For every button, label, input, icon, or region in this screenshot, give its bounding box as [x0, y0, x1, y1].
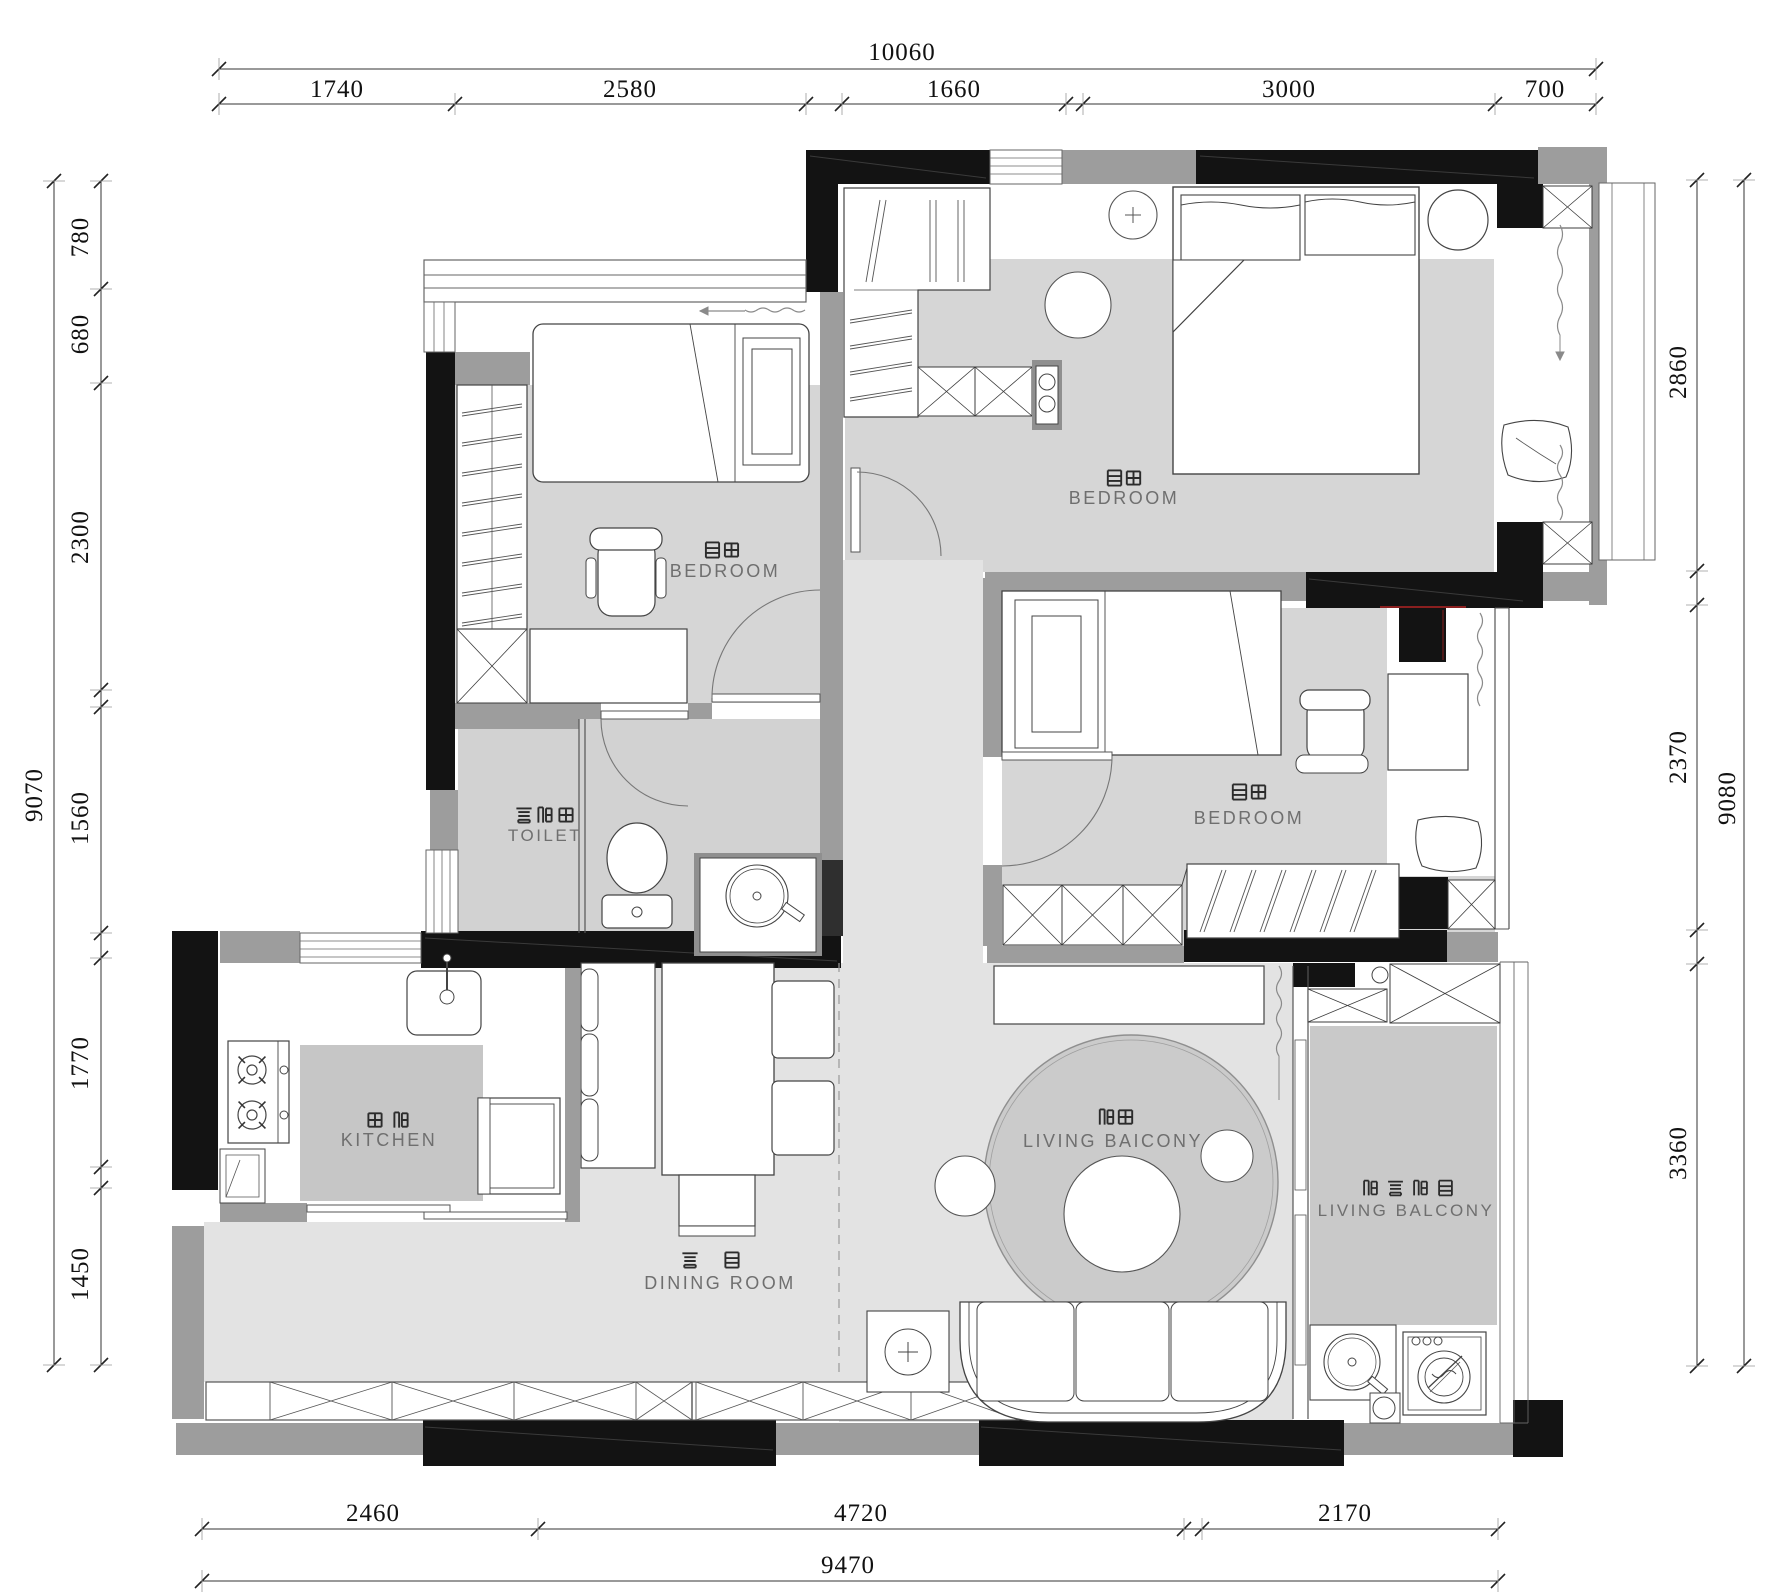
svg-text:3360: 3360: [1665, 1126, 1692, 1180]
svg-text:LIVING BAICONY: LIVING BAICONY: [1023, 1131, 1203, 1151]
svg-text:LIVING BALCONY: LIVING BALCONY: [1318, 1201, 1495, 1220]
svg-text:2860: 2860: [1665, 345, 1692, 399]
svg-text:KITCHEN: KITCHEN: [341, 1130, 438, 1150]
svg-text:9470: 9470: [821, 1552, 875, 1579]
svg-text:BEDROOM: BEDROOM: [670, 561, 781, 581]
svg-text:2580: 2580: [603, 76, 657, 103]
svg-text:9070: 9070: [21, 768, 48, 822]
svg-text:2460: 2460: [346, 1500, 400, 1527]
svg-text:BEDROOM: BEDROOM: [1194, 808, 1305, 828]
svg-text:BEDROOM: BEDROOM: [1069, 488, 1180, 508]
svg-text:780: 780: [67, 217, 94, 258]
svg-text:3000: 3000: [1262, 76, 1316, 103]
svg-text:1740: 1740: [310, 76, 364, 103]
svg-text:1560: 1560: [67, 791, 94, 845]
svg-text:9080: 9080: [1714, 771, 1741, 825]
svg-text:10060: 10060: [868, 39, 936, 66]
svg-text:2300: 2300: [67, 510, 94, 564]
svg-text:1660: 1660: [927, 76, 981, 103]
svg-text:4720: 4720: [834, 1500, 888, 1527]
svg-text:2370: 2370: [1665, 730, 1692, 784]
svg-text:680: 680: [67, 314, 94, 355]
svg-text:700: 700: [1525, 76, 1566, 103]
svg-text:2170: 2170: [1318, 1500, 1372, 1527]
svg-text:DINING ROOM: DINING ROOM: [644, 1273, 796, 1293]
svg-text:1450: 1450: [67, 1247, 94, 1301]
svg-text:1770: 1770: [67, 1036, 94, 1090]
svg-text:TOILET: TOILET: [508, 826, 582, 845]
